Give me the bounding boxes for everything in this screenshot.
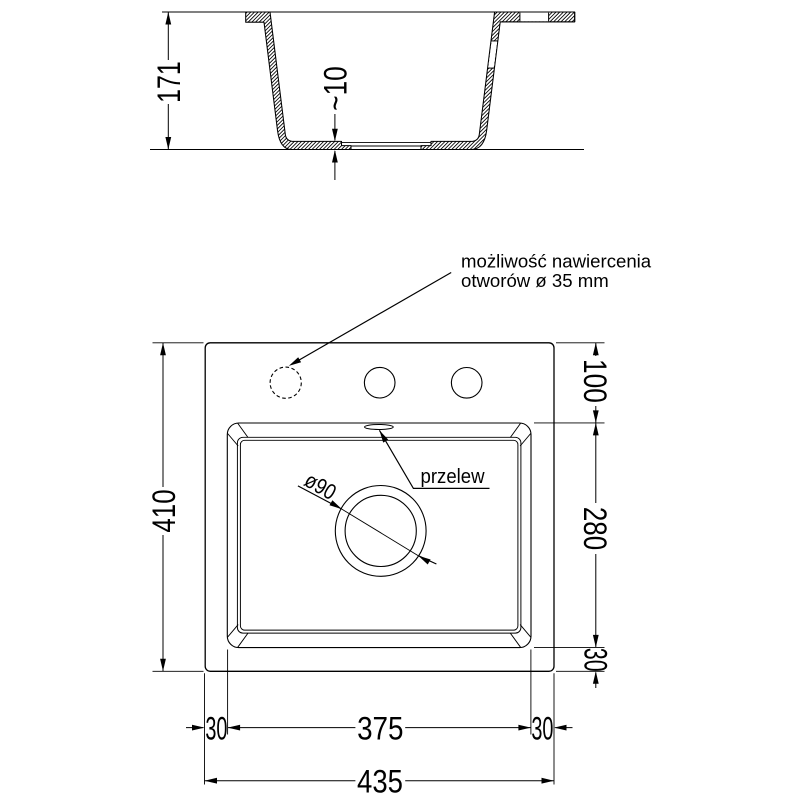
svg-text:410: 410 [148, 489, 183, 532]
svg-text:30: 30 [205, 710, 227, 746]
svg-text:100: 100 [576, 359, 611, 403]
svg-text:możliwość nawiercenia: możliwość nawiercenia [461, 250, 652, 271]
svg-text:przelew: przelew [421, 467, 485, 489]
svg-text:375: 375 [357, 712, 403, 747]
svg-text:otworów ø 35 mm: otworów ø 35 mm [461, 270, 609, 291]
svg-text:280: 280 [576, 507, 611, 550]
svg-text:30: 30 [578, 648, 614, 672]
svg-text:~10: ~10 [319, 66, 354, 110]
svg-text:435: 435 [357, 765, 403, 800]
svg-text:30: 30 [531, 710, 553, 746]
svg-text:171: 171 [152, 61, 188, 103]
svg-text:ø90: ø90 [300, 469, 340, 506]
